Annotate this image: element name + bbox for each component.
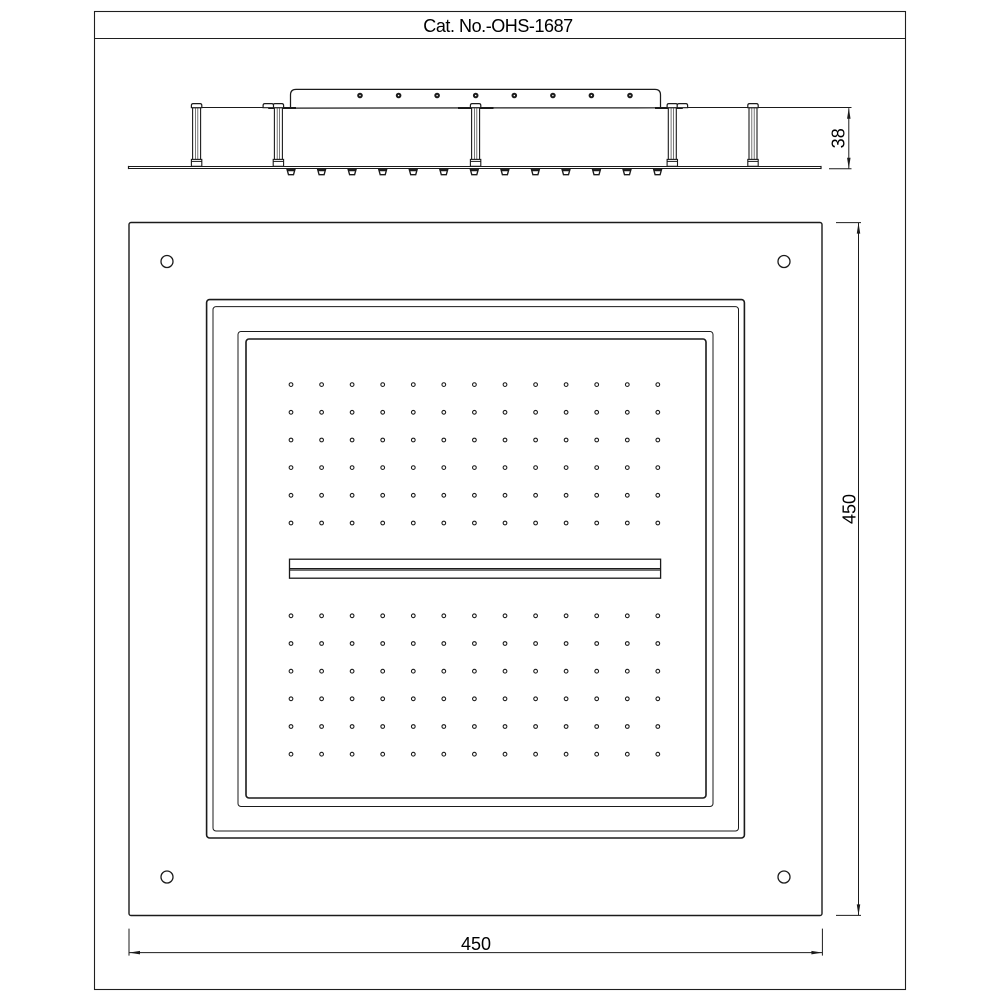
svg-text:38: 38	[829, 128, 849, 148]
svg-text:450: 450	[461, 934, 491, 954]
svg-text:Cat. No.-OHS-1687: Cat. No.-OHS-1687	[423, 16, 573, 36]
svg-text:450: 450	[840, 494, 860, 524]
